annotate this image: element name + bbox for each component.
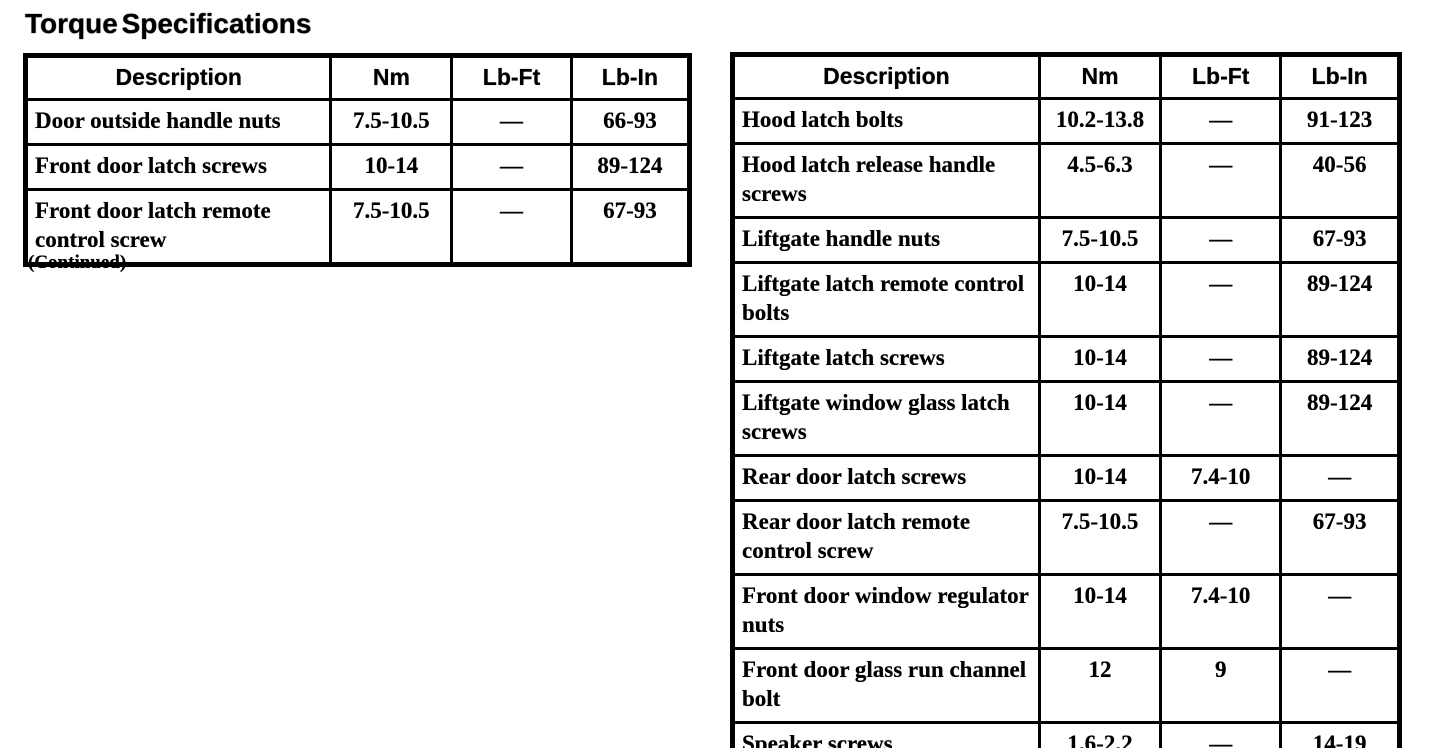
table-row: Hood latch release handle screws 4.5-6.3… [733, 144, 1400, 218]
cell-description: Door outside handle nuts [26, 100, 331, 145]
cell-lbft: — [1161, 144, 1281, 218]
table-row: Rear door latch screws 10-14 7.4-10 — [733, 456, 1400, 501]
column-header-lbin: Lb-In [571, 56, 689, 100]
cell-nm: 10-14 [1039, 575, 1160, 649]
cell-description: Rear door latch screws [733, 456, 1040, 501]
cell-lbin: 66-93 [571, 100, 689, 145]
table-row: Front door glass run channel bolt 12 9 — [733, 649, 1400, 723]
column-header-lbft: Lb-Ft [1161, 55, 1281, 99]
cell-lbin: 40-56 [1281, 144, 1400, 218]
column-header-lbin: Lb-In [1281, 55, 1400, 99]
cell-description: Hood latch release handle screws [733, 144, 1040, 218]
cell-lbin: 67-93 [1281, 501, 1400, 575]
column-header-description: Description [733, 55, 1040, 99]
cell-nm: 7.5-10.5 [331, 190, 452, 265]
cell-description: Front door glass run channel bolt [733, 649, 1040, 723]
cell-nm: 4.5-6.3 [1039, 144, 1160, 218]
cell-lbft: — [1161, 99, 1281, 144]
cell-description: Liftgate handle nuts [733, 218, 1040, 263]
continued-note: (Continued) [28, 252, 126, 274]
cell-lbin: 67-93 [1281, 218, 1400, 263]
cell-lbin: 89-124 [1281, 337, 1400, 382]
cell-nm: 12 [1039, 649, 1160, 723]
column-header-nm: Nm [1039, 55, 1160, 99]
cell-nm: 7.5-10.5 [331, 100, 452, 145]
table-row: Hood latch bolts 10.2-13.8 — 91-123 [733, 99, 1400, 144]
cell-lbft: 7.4-10 [1161, 575, 1281, 649]
table-row: Liftgate window glass latch screws 10-14… [733, 382, 1400, 456]
cell-description: Speaker screws [733, 723, 1040, 748]
column-header-description: Description [26, 56, 331, 100]
cell-lbin: — [1281, 649, 1400, 723]
table-row: Liftgate handle nuts 7.5-10.5 — 67-93 [733, 218, 1400, 263]
torque-table-right: Description Nm Lb-Ft Lb-In Hood latch bo… [730, 52, 1402, 748]
cell-description: Liftgate window glass latch screws [733, 382, 1040, 456]
cell-nm: 10-14 [1039, 382, 1160, 456]
page-title: Torque Specifications [25, 8, 311, 40]
cell-nm: 10-14 [1039, 337, 1160, 382]
cell-nm: 7.5-10.5 [1039, 501, 1160, 575]
cell-nm: 10.2-13.8 [1039, 99, 1160, 144]
table-row: Rear door latch remote control screw 7.5… [733, 501, 1400, 575]
cell-nm: 10-14 [1039, 263, 1160, 337]
cell-lbft: — [1161, 501, 1281, 575]
table-header-row: Description Nm Lb-Ft Lb-In [26, 56, 690, 100]
table-row: Front door latch screws 10-14 — 89-124 [26, 145, 690, 190]
cell-lbft: — [452, 145, 572, 190]
cell-lbft: — [1161, 337, 1281, 382]
table-row: Liftgate latch screws 10-14 — 89-124 [733, 337, 1400, 382]
cell-lbin: 67-93 [571, 190, 689, 265]
cell-description: Liftgate latch screws [733, 337, 1040, 382]
cell-description: Hood latch bolts [733, 99, 1040, 144]
cell-lbft: — [1161, 723, 1281, 748]
cell-lbft: 7.4-10 [1161, 456, 1281, 501]
cell-nm: 10-14 [1039, 456, 1160, 501]
cell-nm: 7.5-10.5 [1039, 218, 1160, 263]
cell-lbft: — [1161, 382, 1281, 456]
cell-lbin: 91-123 [1281, 99, 1400, 144]
cell-lbin: 89-124 [1281, 382, 1400, 456]
table-row: Liftgate latch remote control bolts 10-1… [733, 263, 1400, 337]
cell-lbin: 89-124 [571, 145, 689, 190]
cell-description: Rear door latch remote control screw [733, 501, 1040, 575]
cell-lbin: 89-124 [1281, 263, 1400, 337]
cell-lbft: — [452, 100, 572, 145]
table-row: Front door window regulator nuts 10-14 7… [733, 575, 1400, 649]
cell-lbft: — [452, 190, 572, 265]
cell-nm: 10-14 [331, 145, 452, 190]
cell-description: Front door latch screws [26, 145, 331, 190]
cell-description: Front door window regulator nuts [733, 575, 1040, 649]
cell-lbin: — [1281, 575, 1400, 649]
torque-table-left: Description Nm Lb-Ft Lb-In Door outside … [23, 53, 692, 267]
cell-nm: 1.6-2.2 [1039, 723, 1160, 748]
cell-lbft: 9 [1161, 649, 1281, 723]
column-header-lbft: Lb-Ft [452, 56, 572, 100]
cell-lbft: — [1161, 218, 1281, 263]
column-header-nm: Nm [331, 56, 452, 100]
table-row: Door outside handle nuts 7.5-10.5 — 66-9… [26, 100, 690, 145]
table-header-row: Description Nm Lb-Ft Lb-In [733, 55, 1400, 99]
cell-lbin: — [1281, 456, 1400, 501]
cell-description: Liftgate latch remote control bolts [733, 263, 1040, 337]
cell-lbft: — [1161, 263, 1281, 337]
cell-lbin: 14-19 [1281, 723, 1400, 748]
table-row: Speaker screws 1.6-2.2 — 14-19 [733, 723, 1400, 748]
